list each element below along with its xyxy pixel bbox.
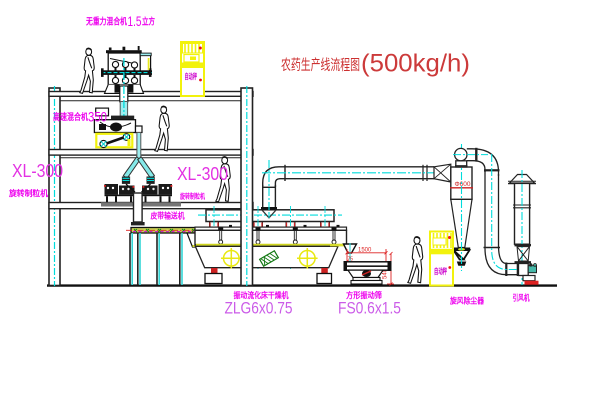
svg-text:自动秤: 自动秤 xyxy=(434,266,447,276)
svg-text:引风机: 引风机 xyxy=(513,293,530,303)
svg-text:振动流化床干燥机: 振动流化床干燥机 xyxy=(234,290,289,300)
svg-text:皮带输送机: 皮带输送机 xyxy=(150,211,185,221)
svg-text:无重力混合机: 无重力混合机 xyxy=(85,16,127,27)
svg-text:方形振动筛: 方形振动筛 xyxy=(346,290,382,300)
svg-text:旋风除尘器: 旋风除尘器 xyxy=(449,296,485,306)
svg-text:自动秤: 自动秤 xyxy=(185,71,198,81)
svg-text:旋转制粒机: 旋转制粒机 xyxy=(8,188,48,198)
svg-text:ZLG6x0.75: ZLG6x0.75 xyxy=(225,300,293,318)
svg-text:1500: 1500 xyxy=(358,248,372,254)
svg-text:立方: 立方 xyxy=(142,16,155,27)
svg-text:Φ600: Φ600 xyxy=(455,181,471,188)
svg-text:XL-300: XL-300 xyxy=(12,160,63,181)
svg-text:农药生产线流程图: 农药生产线流程图 xyxy=(281,57,360,74)
svg-text:高速混合机: 高速混合机 xyxy=(53,111,88,122)
svg-text:1.5: 1.5 xyxy=(128,13,142,29)
svg-text:350: 350 xyxy=(88,109,107,125)
svg-text:FS0.6x1.5: FS0.6x1.5 xyxy=(338,300,401,318)
svg-text:XL-300: XL-300 xyxy=(177,163,228,184)
svg-text:(500kg/h): (500kg/h) xyxy=(361,50,470,78)
svg-text:旋转制粒机: 旋转制粒机 xyxy=(179,192,205,201)
